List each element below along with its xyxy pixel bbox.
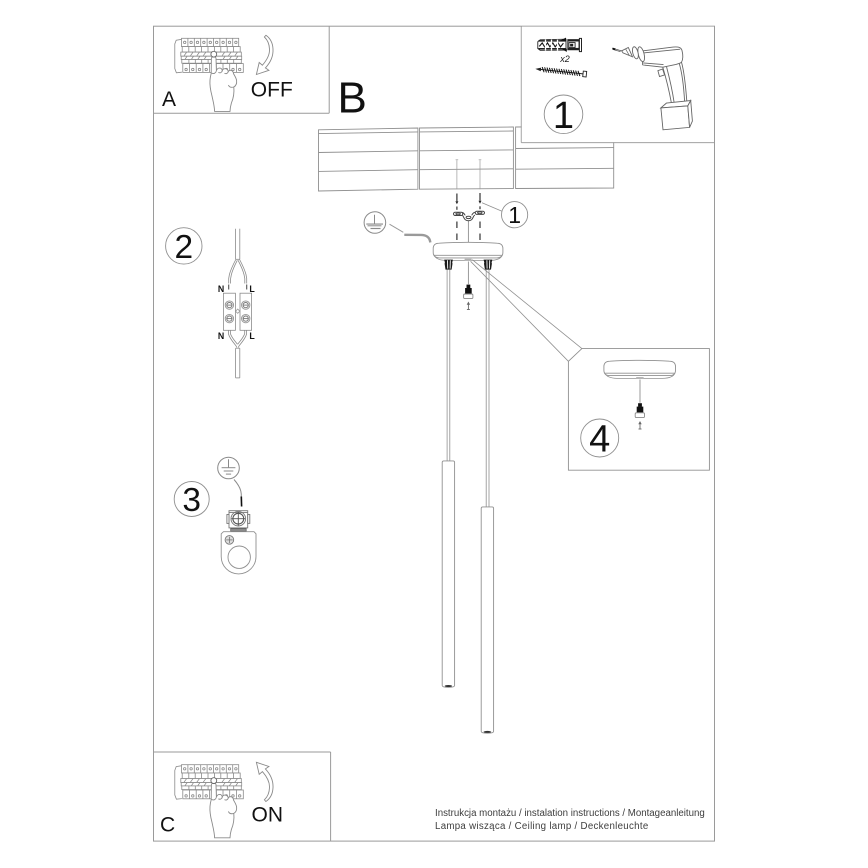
svg-text:L: L	[249, 331, 255, 341]
svg-text:OFF: OFF	[251, 78, 293, 101]
svg-text:N: N	[218, 331, 224, 341]
svg-text:x2: x2	[559, 54, 570, 64]
svg-text:Lampa wisząca / Ceiling lamp /: Lampa wisząca / Ceiling lamp / Deckenleu…	[435, 821, 649, 832]
svg-text:1: 1	[508, 202, 521, 228]
svg-text:1: 1	[553, 95, 574, 137]
svg-text:A: A	[162, 88, 176, 111]
svg-text:3: 3	[182, 482, 201, 519]
svg-text:ON: ON	[252, 804, 284, 827]
svg-text:N: N	[218, 284, 224, 294]
svg-text:Instrukcja montażu / instalati: Instrukcja montażu / instalation instruc…	[435, 808, 705, 819]
svg-text:2: 2	[174, 229, 193, 266]
svg-text:B: B	[338, 74, 367, 123]
svg-text:L: L	[249, 284, 255, 294]
svg-text:4: 4	[589, 419, 610, 461]
svg-text:C: C	[160, 814, 175, 837]
